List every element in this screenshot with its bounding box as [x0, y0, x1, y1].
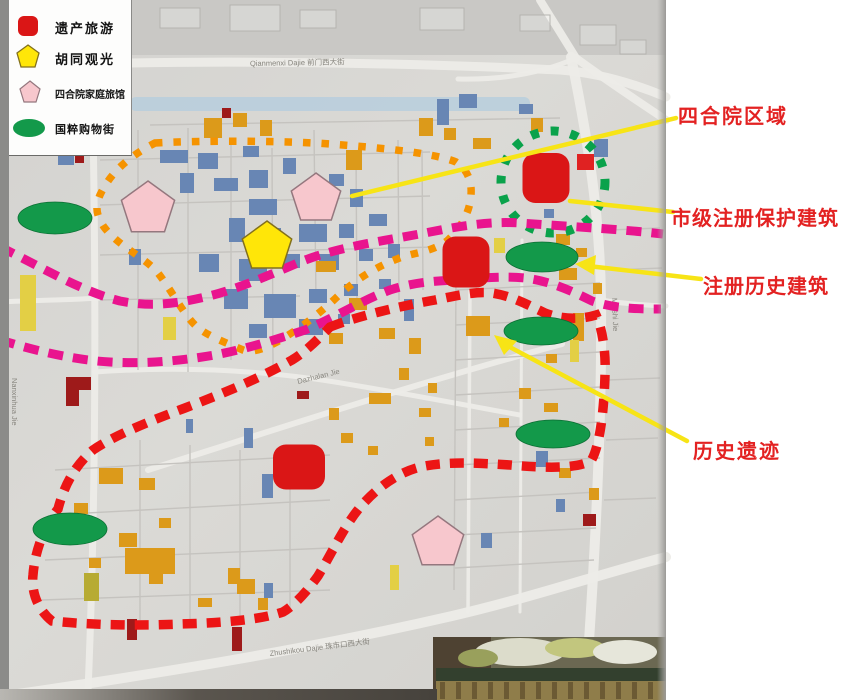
photo-inset — [433, 637, 666, 700]
heritage-red-square-icon — [9, 12, 55, 42]
callout-city-protected-building: 市级注册保护建筑 — [671, 202, 839, 231]
legend-item-shopping: 国粹购物街 — [55, 121, 115, 137]
shopping-street-marker — [18, 202, 92, 234]
callout-courtyard-zone: 四合院区域 — [678, 100, 788, 129]
callout-registered-historic-building: 注册历史建筑 — [703, 270, 829, 299]
shopping-green-ellipse-icon — [9, 114, 55, 144]
courtyard-inn-pink-pentagon-icon — [9, 77, 55, 109]
street-label: Nanxinhua Jie — [10, 378, 19, 426]
hutong-yellow-pentagon-icon — [9, 42, 55, 74]
shopping-street-marker — [33, 513, 107, 545]
callout-historic-relics: 历史遗迹 — [693, 435, 781, 464]
legend-panel: 遗产旅游 胡同观光 四合院家庭旅馆 国粹购物街 — [9, 0, 132, 156]
annotated-tourism-map: { "legend": { "items": [ {"label": "遗产旅游… — [0, 0, 855, 700]
shopping-street-marker — [506, 242, 578, 272]
legend-item-heritage: 遗产旅游 — [55, 18, 115, 37]
legend-item-courtyard-inn: 四合院家庭旅馆 — [55, 86, 125, 101]
heritage-tourism-marker — [523, 153, 570, 203]
heritage-tourism-marker — [443, 237, 490, 288]
heritage-tourism-marker — [273, 445, 325, 490]
street-label: Qianmenxi Dajie 前门西大街 — [250, 56, 345, 68]
legend-item-hutong: 胡同观光 — [55, 49, 115, 68]
shopping-street-marker — [516, 420, 590, 448]
